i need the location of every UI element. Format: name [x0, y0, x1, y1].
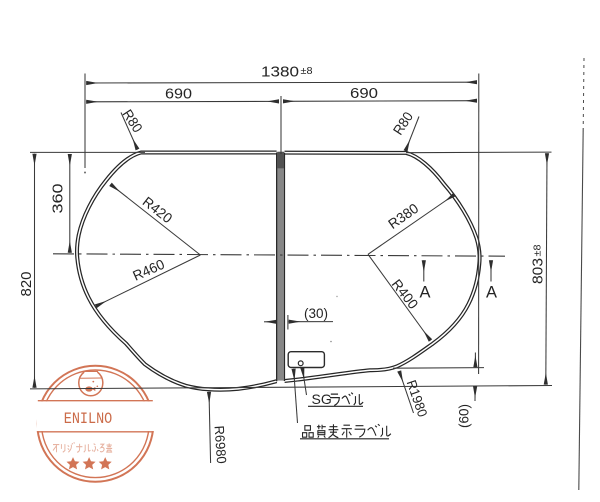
- svg-text:690: 690: [165, 87, 192, 103]
- svg-text:SG: SG: [312, 391, 332, 407]
- svg-text:A: A: [420, 283, 432, 302]
- svg-text:803: 803: [530, 258, 547, 284]
- svg-text:360: 360: [50, 184, 67, 214]
- svg-text:±8: ±8: [301, 66, 313, 77]
- svg-text:(60): (60): [457, 404, 472, 428]
- svg-text:690: 690: [350, 86, 378, 102]
- svg-text:ENILNO: ENILNO: [64, 410, 113, 428]
- svg-text:A: A: [486, 283, 498, 302]
- svg-text:820: 820: [18, 272, 35, 297]
- svg-text:1380: 1380: [261, 64, 299, 81]
- svg-text:±8: ±8: [533, 244, 544, 256]
- svg-text:R6980: R6980: [212, 425, 230, 464]
- svg-text:(30): (30): [304, 306, 328, 321]
